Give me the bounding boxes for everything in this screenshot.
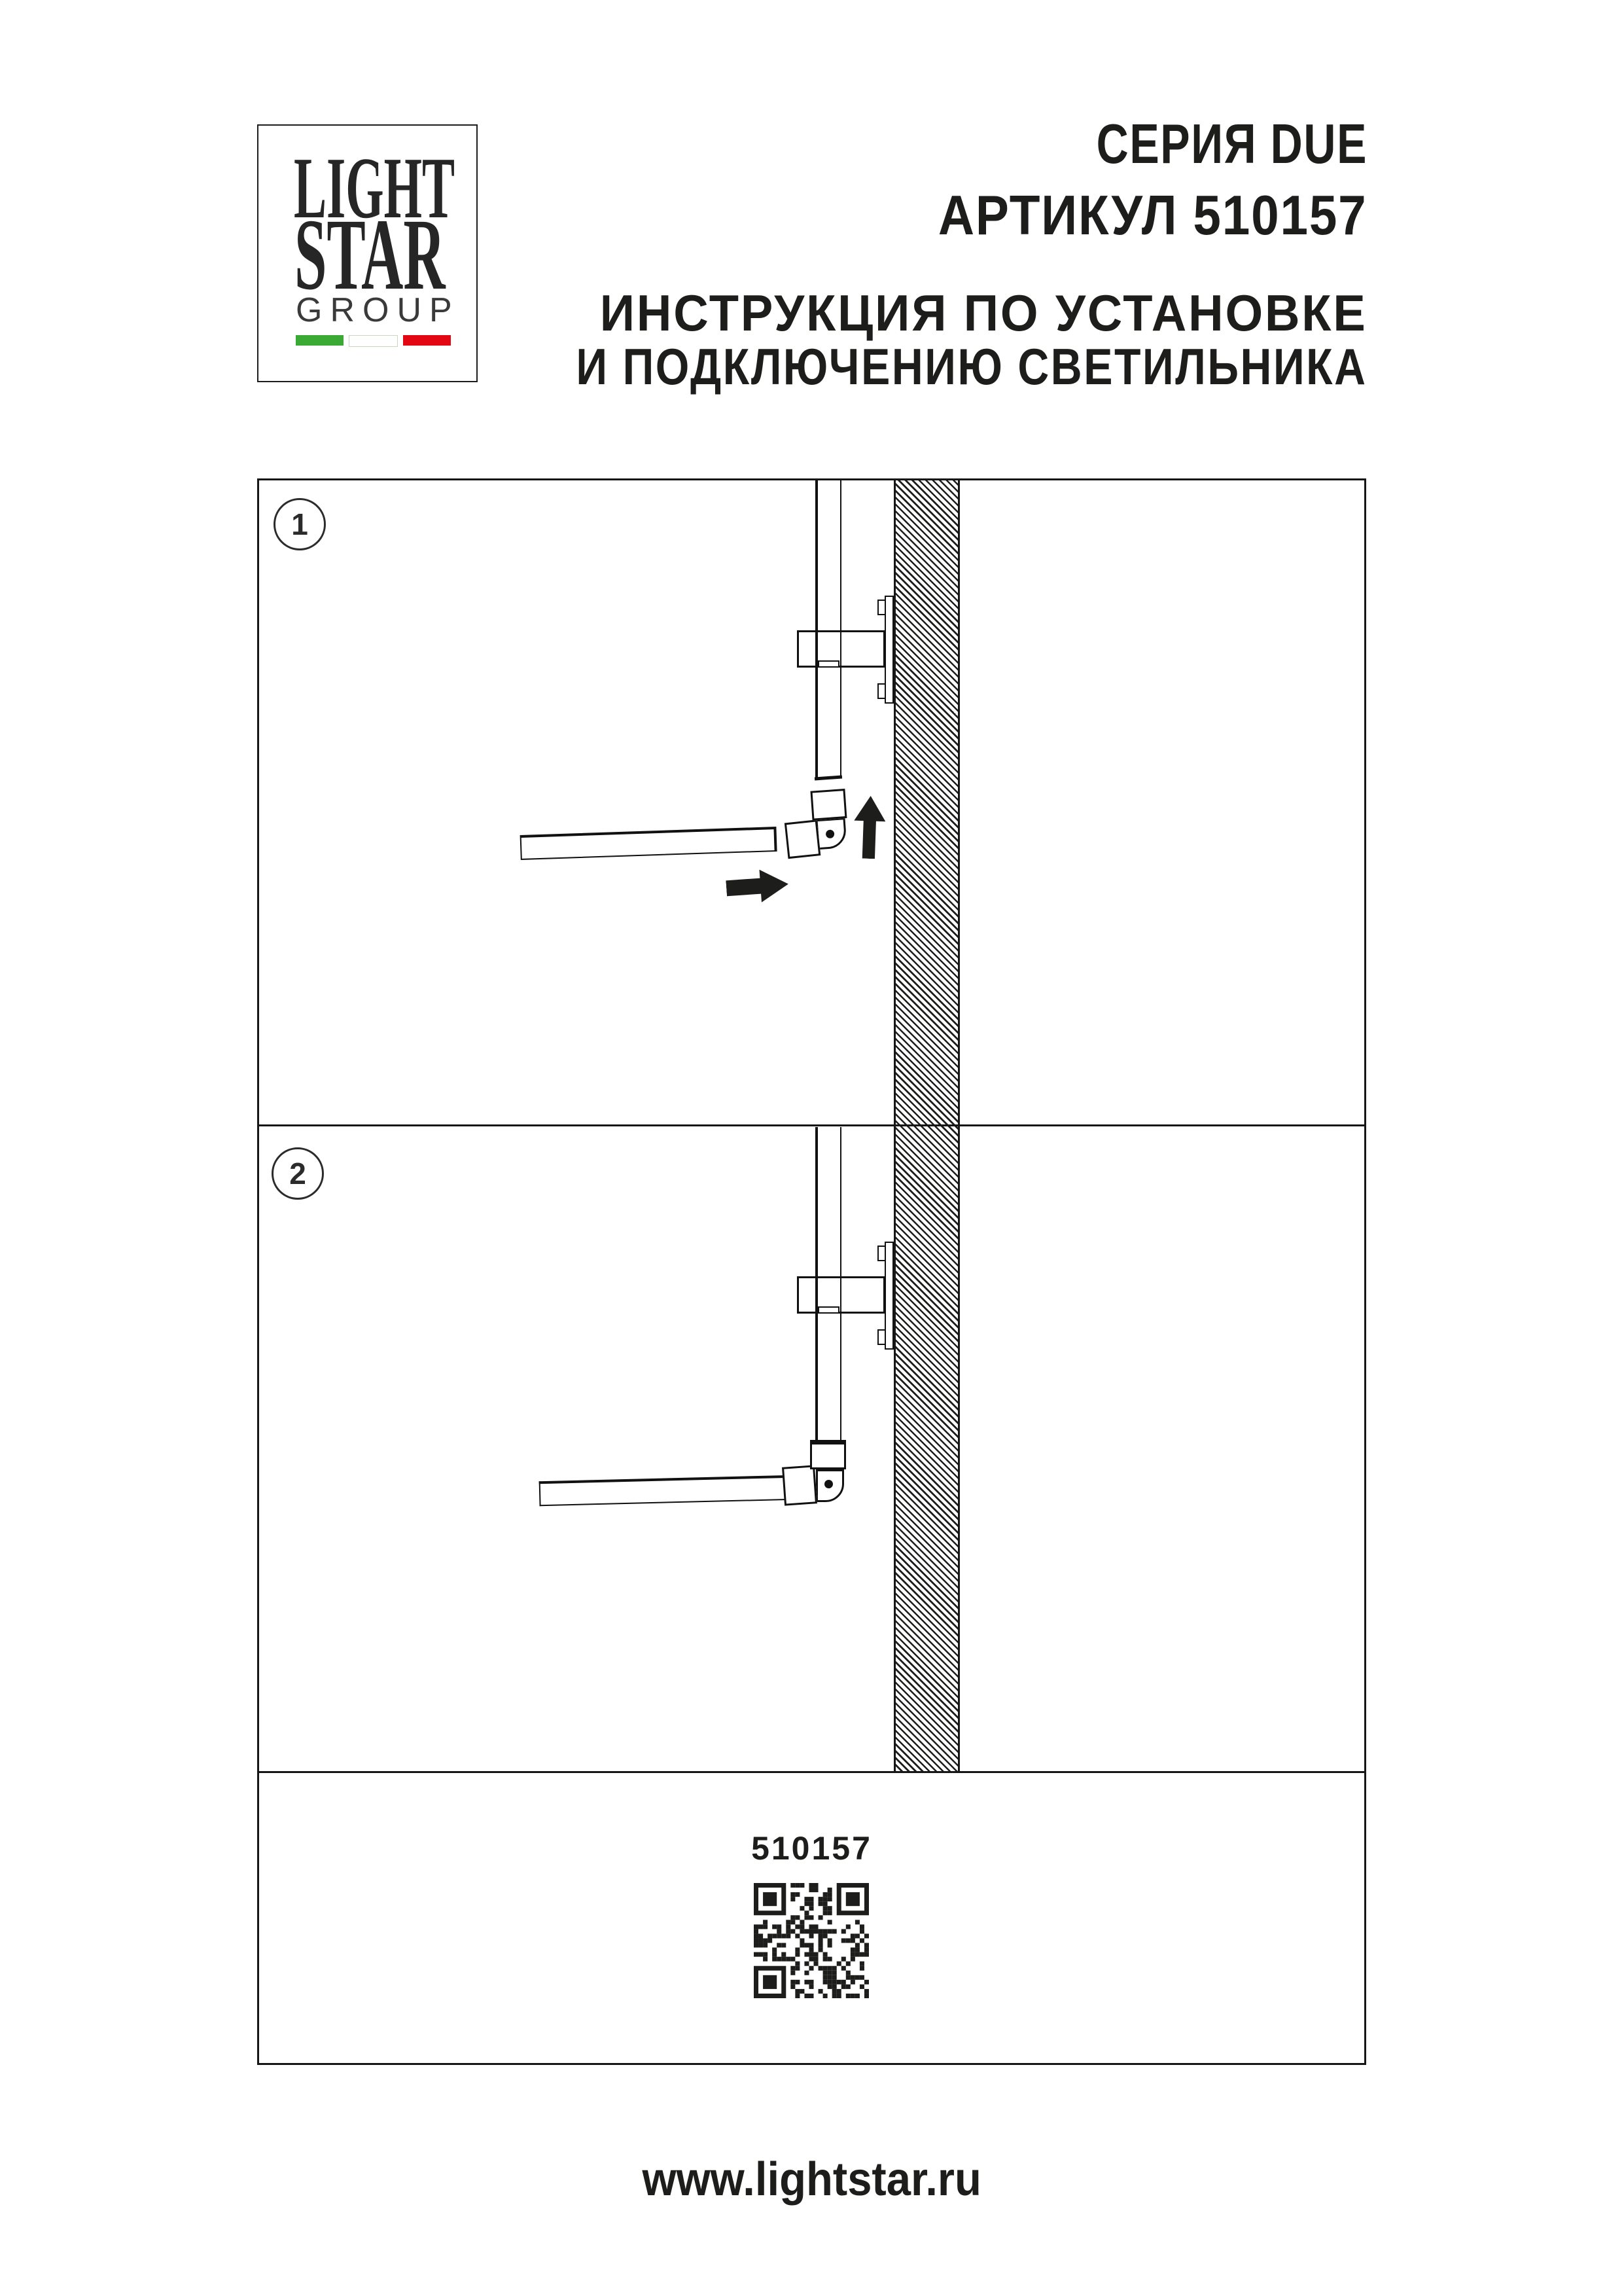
lamp-pole-step1 xyxy=(815,480,841,778)
mounting-plate-step2 xyxy=(885,1242,894,1350)
mounting-plate-step1 xyxy=(885,596,894,704)
logo-word-star: STAR xyxy=(294,204,446,306)
logo-word-group: GROUP xyxy=(296,293,460,327)
instruction-sheet: LIGHT STAR GROUP СЕРИЯ DUE АРТИКУЛ 51015… xyxy=(0,0,1624,2296)
elbow-connector-step2 xyxy=(782,1437,854,1509)
bracket-notch-step2 xyxy=(818,1306,839,1314)
wall-bracket-step1 xyxy=(797,630,885,668)
step-2-number: 2 xyxy=(289,1156,306,1191)
screw-icon xyxy=(877,683,886,699)
instruction-title-line2: И ПОДКЛЮЧЕНИЮ СВЕТИЛЬНИКА xyxy=(576,341,1368,392)
italian-flag-icon xyxy=(296,335,451,346)
elbow-upper-square xyxy=(810,789,847,821)
arrow-up-icon xyxy=(853,795,886,859)
panel-divider-1 xyxy=(257,1124,1366,1126)
arrow-right-icon xyxy=(725,868,789,905)
elbow-pivot-dot xyxy=(824,1480,833,1488)
elbow-lower-square xyxy=(782,1465,817,1505)
step-2-badge: 2 xyxy=(272,1147,324,1200)
footer-website: www.lightstar.ru xyxy=(0,2156,1624,2203)
step-1-number: 1 xyxy=(291,507,308,542)
footer-url-text: www.lightstar.ru xyxy=(643,2156,981,2203)
screw-icon xyxy=(877,1246,886,1261)
article-code: 510157 xyxy=(257,1832,1366,1865)
series-title: СЕРИЯ DUE xyxy=(1097,117,1368,172)
elbow-connector-step1 xyxy=(780,785,856,862)
wall-hatch xyxy=(894,480,960,1773)
bracket-notch-step1 xyxy=(818,660,839,668)
screw-icon xyxy=(877,1329,886,1345)
instruction-title-line1: ИНСТРУКЦИЯ ПО УСТАНОВКЕ xyxy=(600,287,1368,338)
panel-divider-2 xyxy=(257,1771,1366,1773)
step-1-badge: 1 xyxy=(274,498,326,550)
flag-green-band xyxy=(296,335,344,346)
flag-red-band xyxy=(403,335,451,346)
wall-bracket-step2 xyxy=(797,1276,885,1314)
flag-white-band xyxy=(349,335,398,347)
lamp-arm-step2 xyxy=(539,1475,787,1506)
article-title: АРТИКУЛ 510157 xyxy=(938,188,1368,243)
diagram-frame xyxy=(257,478,1366,2065)
lightstar-logo: LIGHT STAR GROUP xyxy=(257,124,478,382)
lamp-arm-step1 xyxy=(520,827,777,860)
qr-code xyxy=(754,1883,869,1998)
elbow-upper-square xyxy=(810,1440,846,1469)
screw-icon xyxy=(877,600,886,615)
elbow-lower-square xyxy=(785,819,821,859)
